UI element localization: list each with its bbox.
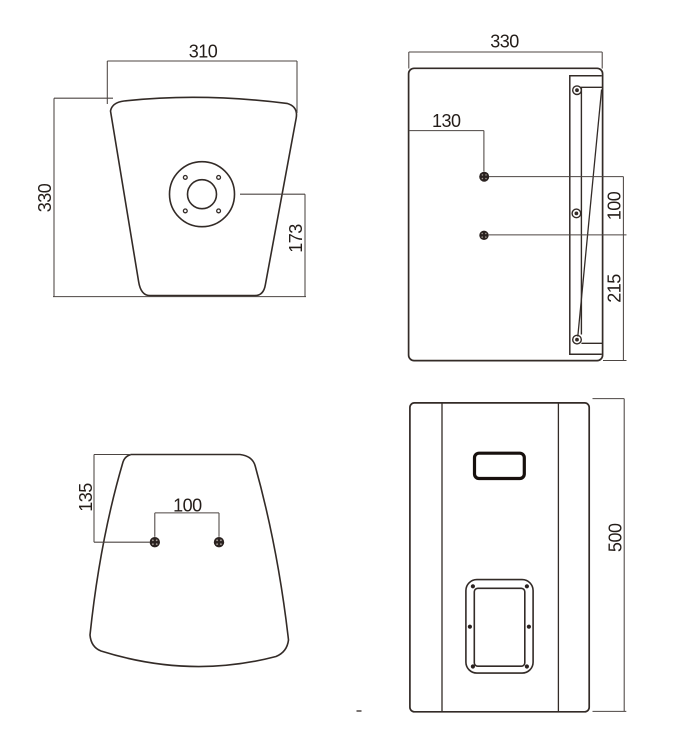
svg-text:310: 310 [189,42,218,62]
svg-text:130: 130 [432,111,461,131]
svg-text:100: 100 [173,496,202,516]
svg-text:215: 215 [605,274,625,303]
svg-text:135: 135 [76,483,96,512]
svg-text:330: 330 [490,32,519,52]
svg-text:173: 173 [286,224,306,253]
svg-text:100: 100 [605,191,625,220]
svg-text:500: 500 [605,523,625,552]
svg-text:330: 330 [35,183,55,212]
